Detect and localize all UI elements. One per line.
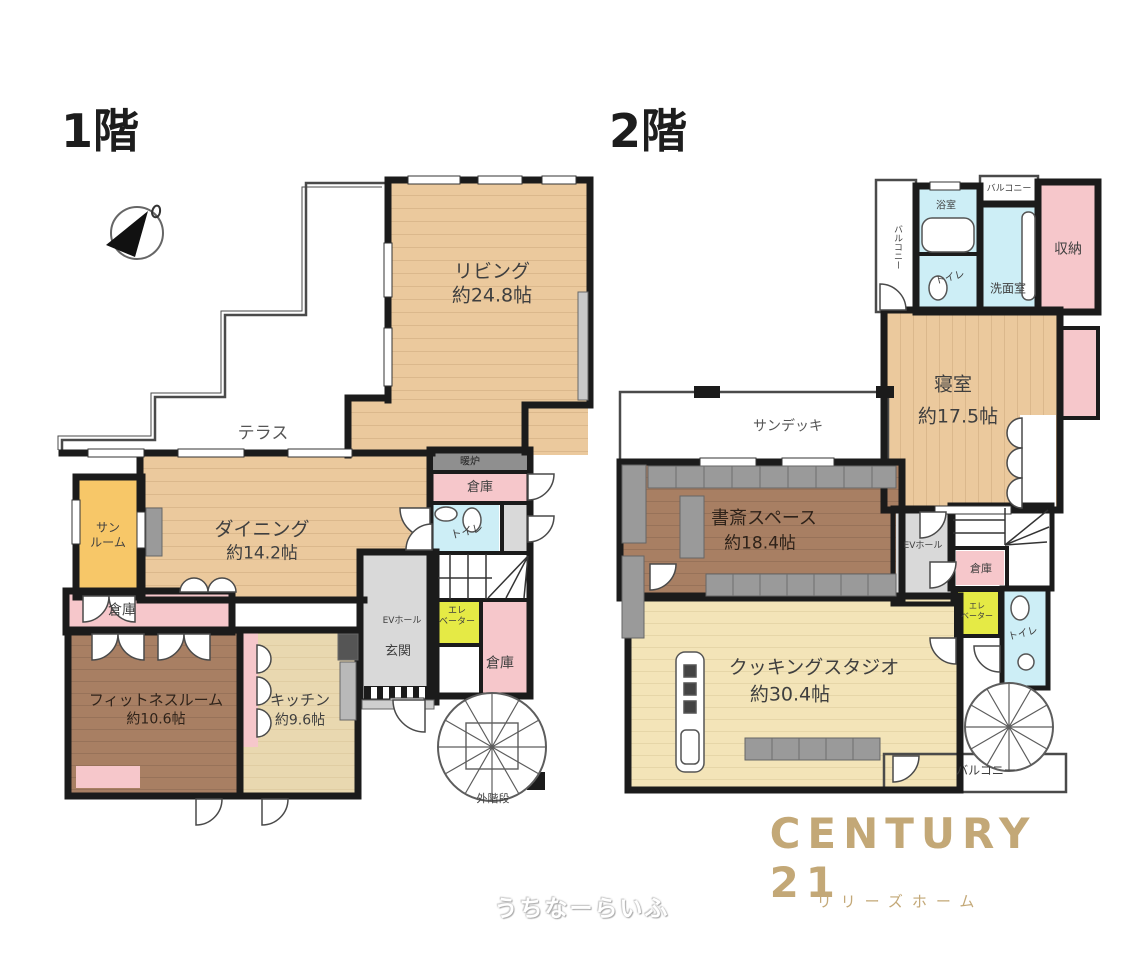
outdoor-stairs-label: 外階段 [477, 793, 510, 805]
spiral-stairs-icon [438, 693, 546, 801]
cooking-size: 約30.4帖 [750, 685, 830, 706]
fitness-label: フィットネスルーム [89, 692, 223, 709]
kitchen-size: 約9.6帖 [275, 713, 325, 728]
room-storage-south-area [483, 602, 528, 694]
bedroom-size: 約17.5帖 [918, 407, 998, 428]
study-label: 書斎スペース [711, 509, 817, 529]
cooking-label: クッキングスタジオ [729, 658, 899, 679]
fitness-size: 約10.6帖 [126, 712, 185, 727]
balcony-north-label: バルコニー [987, 185, 1032, 195]
kitchen-label: キッチン [270, 692, 330, 709]
floor1-title: 1階 [61, 95, 139, 161]
spiral-stairs2-icon [965, 683, 1053, 771]
sundeck-label: サンデッキ [753, 419, 823, 434]
room-study-area [623, 465, 899, 595]
dining-label: ダイニング [214, 520, 309, 541]
balcony-west-label: バルコニー [891, 225, 901, 270]
closet-strip-east [1062, 330, 1096, 416]
entrance-label: 玄関 [385, 645, 411, 659]
floorplan-canvas: 1階 2階 リビング 約24.8帖 テラス ダイニング 約14.2帖 サン ルー… [0, 0, 1145, 960]
storage-north-label: 倉庫 [467, 481, 493, 495]
entrance-tile-strip [364, 686, 434, 700]
storage2-label: 倉庫 [970, 563, 992, 575]
elevator2-label-1: エレ [969, 603, 985, 612]
washroom-label: 洗面室 [990, 282, 1026, 295]
floor2-title: 2階 [609, 95, 687, 161]
kitchen-closet-strip [243, 633, 258, 747]
company-name: リリーズホーム [817, 891, 984, 912]
terrace-label: テラス [238, 425, 289, 444]
living-size: 約24.8帖 [452, 286, 532, 307]
room-living-extension [350, 399, 588, 455]
balcony-south-label: バルコニー [956, 764, 1016, 777]
stairs2-icon [953, 508, 1049, 545]
bedroom-closet-strip [1020, 415, 1056, 507]
room-storage-west-area [69, 594, 229, 629]
sunroom-label-2: ルーム [90, 536, 126, 549]
elevator2-label-2: ベーター [961, 613, 993, 622]
bathroom-label: 浴室 [936, 201, 956, 212]
room-bathroom-area [919, 189, 977, 252]
fireplace-strip [434, 453, 526, 471]
room-entrance-area [363, 555, 433, 699]
compass-icon [106, 206, 163, 259]
living-label: リビング [454, 262, 530, 283]
bedroom-label: 寝室 [934, 375, 972, 396]
elevator1-label-2: ベーター [439, 618, 475, 628]
sunroom-label-1: サン [96, 521, 120, 534]
fitness-closet-strip [76, 766, 140, 788]
utility-gray-box [503, 505, 528, 551]
site-watermark: うちなーらいふ [495, 889, 670, 923]
terrace-outline [58, 183, 386, 453]
dining-size: 約14.2帖 [226, 545, 298, 564]
stairs1-icon [438, 554, 528, 599]
elevator1-label-1: エレ [448, 607, 466, 617]
evhall2-label: EVホール [904, 542, 943, 552]
evhall1-label: EVホール [383, 617, 422, 627]
fireplace-label: 暖炉 [460, 457, 480, 468]
storage-south-label: 倉庫 [486, 656, 514, 671]
study-size: 約18.4帖 [724, 535, 796, 554]
room-evhall2-area [896, 511, 950, 601]
storage-west-label: 倉庫 [108, 603, 136, 618]
closet-label: 収納 [1054, 242, 1082, 257]
